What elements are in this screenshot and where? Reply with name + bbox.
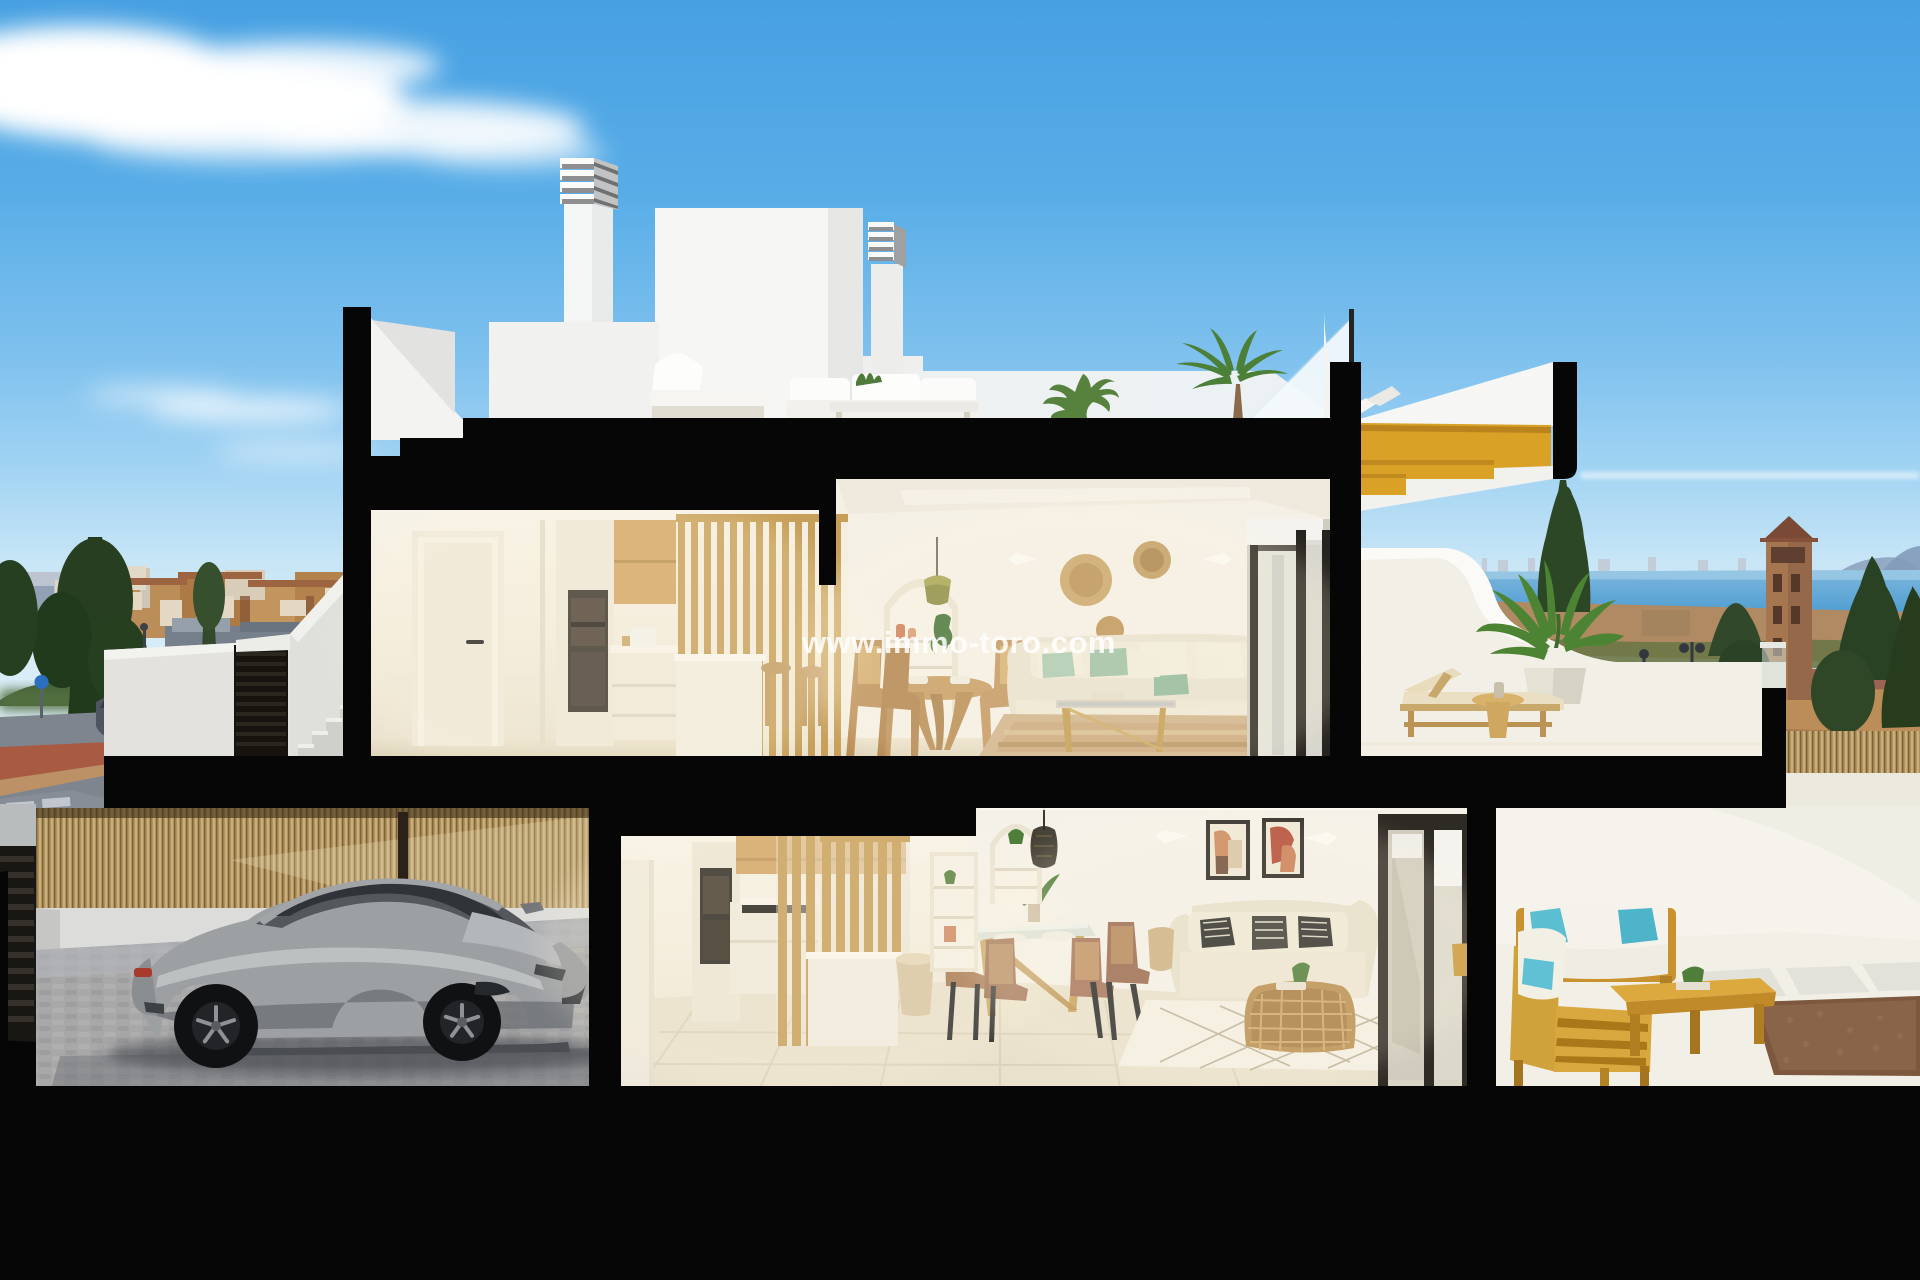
svg-text:www.immo-toro.com: www.immo-toro.com	[801, 625, 1116, 660]
